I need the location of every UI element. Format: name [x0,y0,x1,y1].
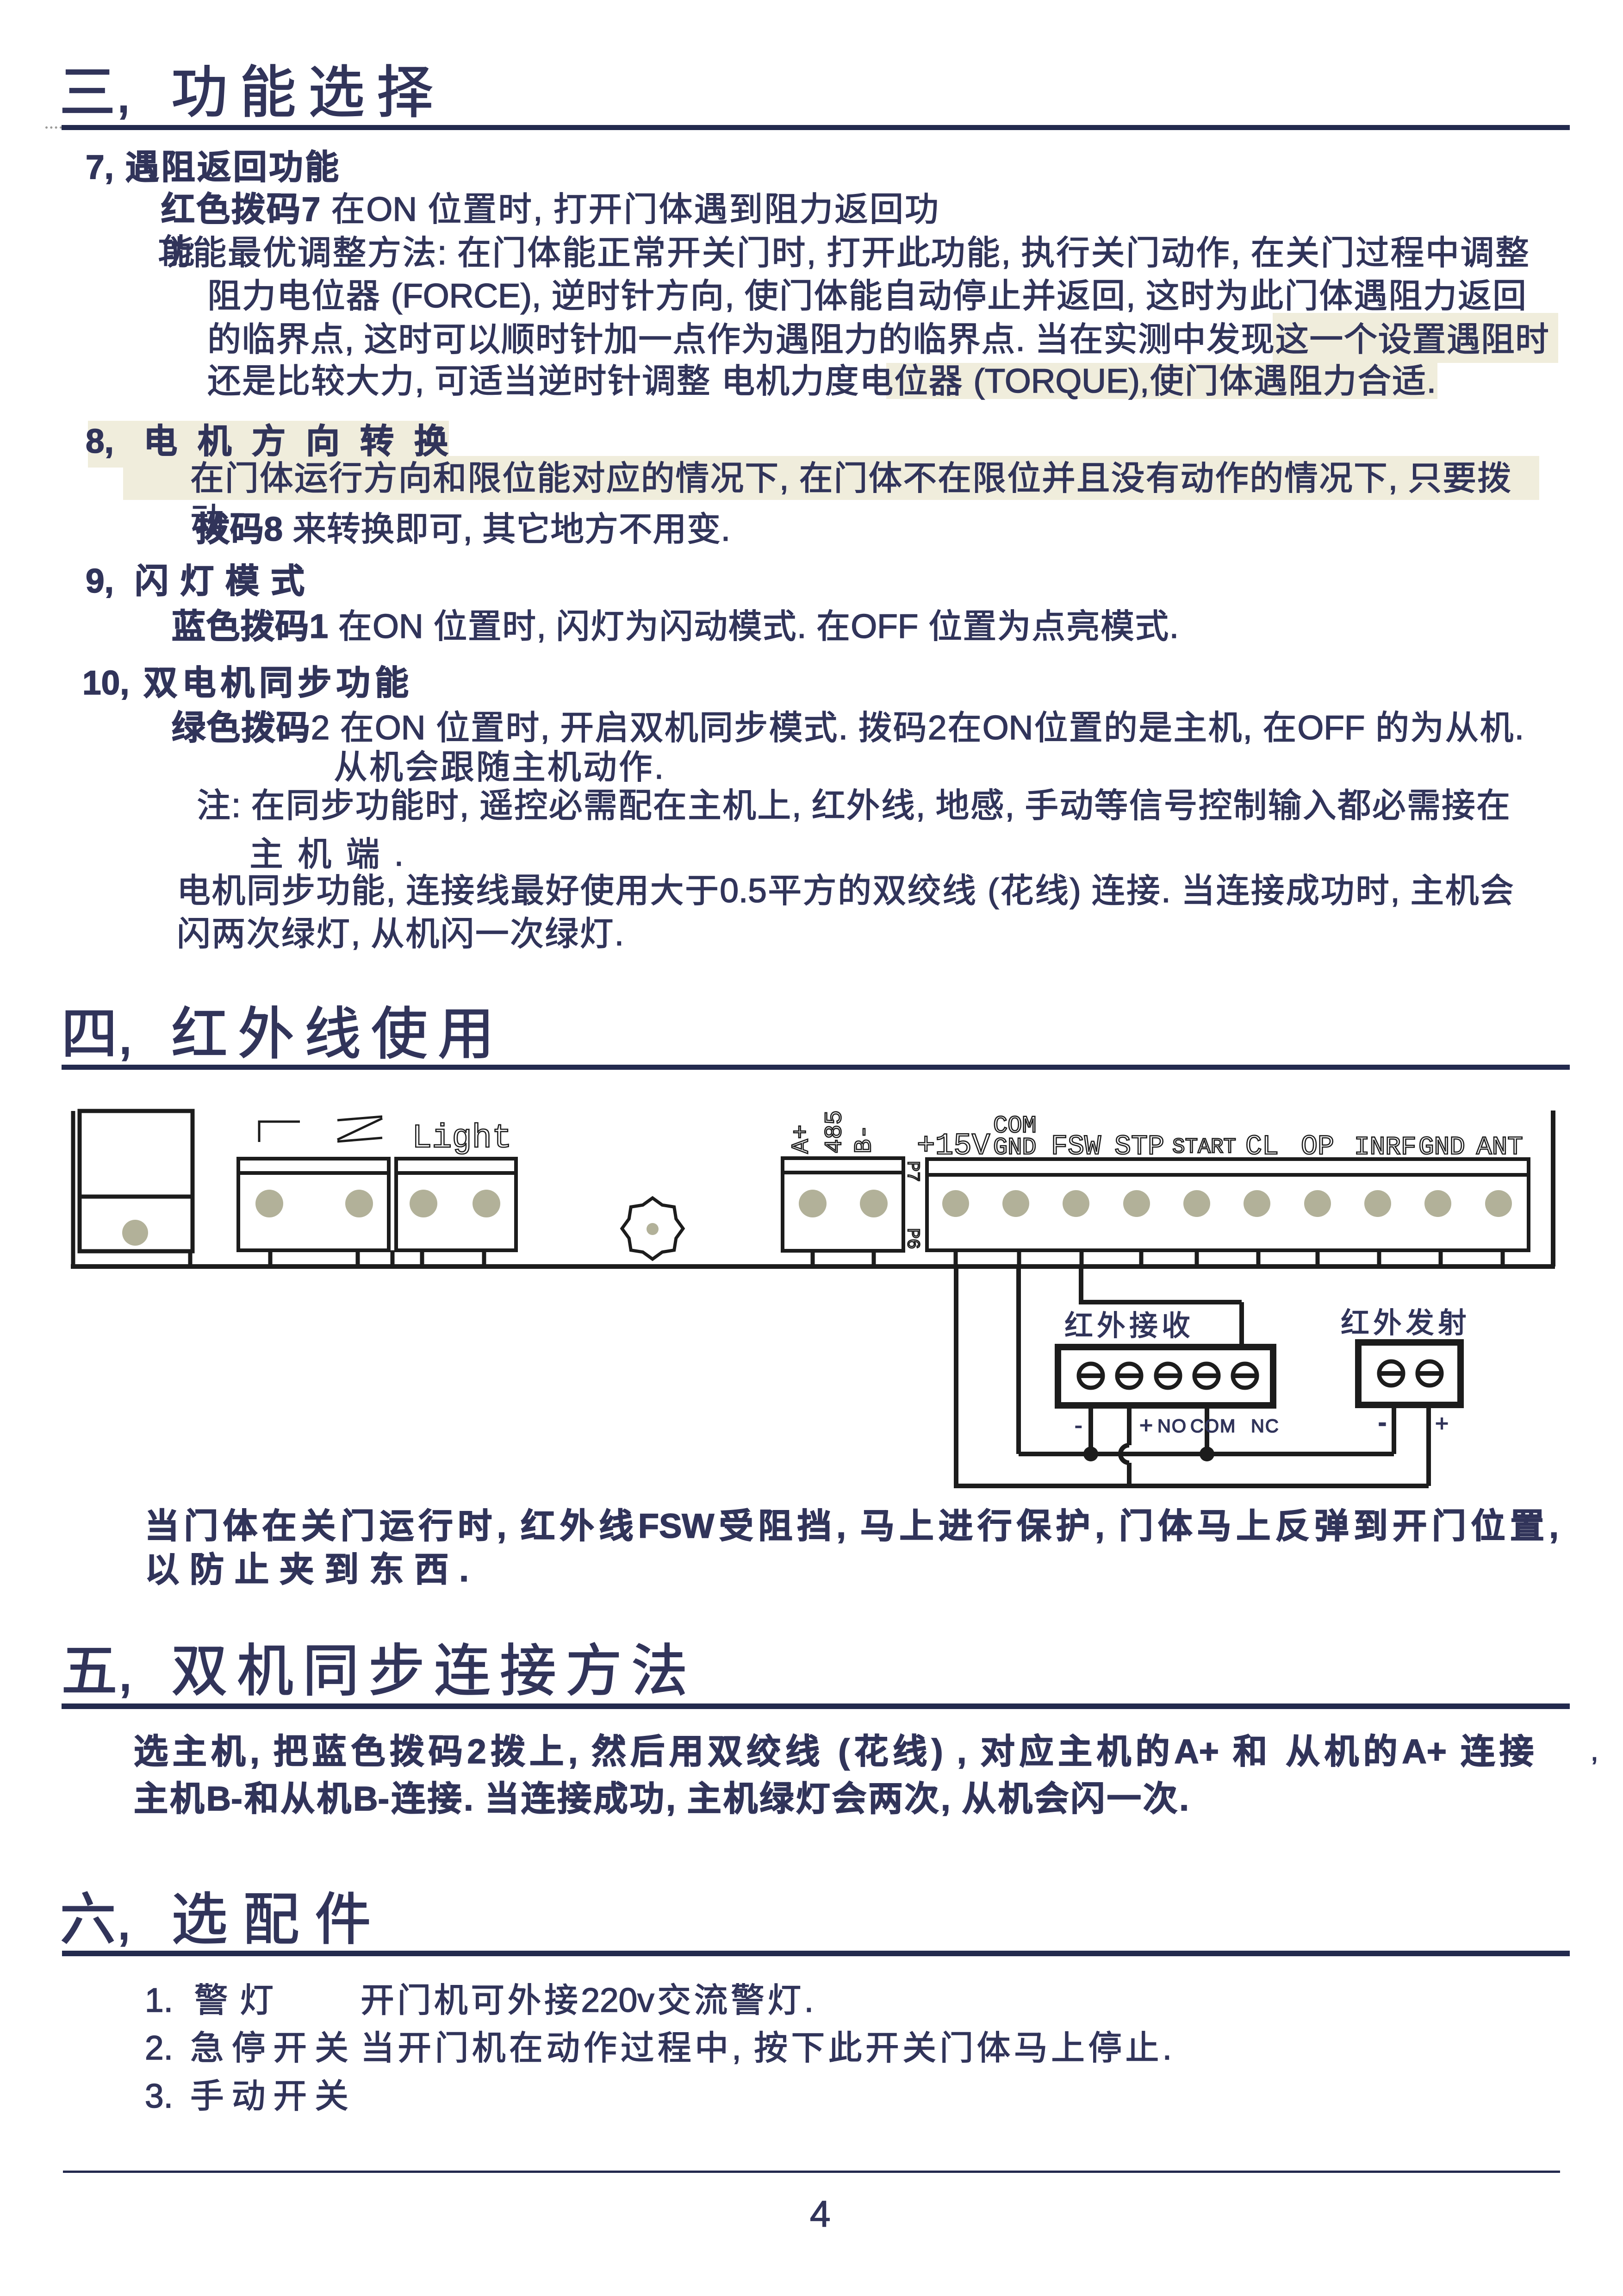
svg-text:485: 485 [821,1110,848,1154]
svg-text:GND: GND [1418,1132,1465,1162]
svg-text:P7: P7 [902,1161,922,1182]
svg-text:STP: STP [1114,1131,1164,1163]
svg-text:A+: A+ [788,1125,815,1154]
svg-text:P6: P6 [902,1228,922,1249]
svg-text:OP: OP [1301,1131,1334,1163]
svg-text:+15V: +15V [917,1129,990,1163]
svg-text:Light: Light [412,1119,512,1157]
svg-text:FSW: FSW [1051,1131,1101,1163]
svg-text:ANT: ANT [1476,1132,1523,1162]
svg-text:B-: B- [851,1125,878,1154]
svg-text:CL: CL [1245,1131,1279,1163]
svg-text:START: START [1172,1135,1236,1159]
svg-text:GND: GND [993,1134,1037,1161]
svg-text:INRF: INRF [1354,1132,1416,1162]
